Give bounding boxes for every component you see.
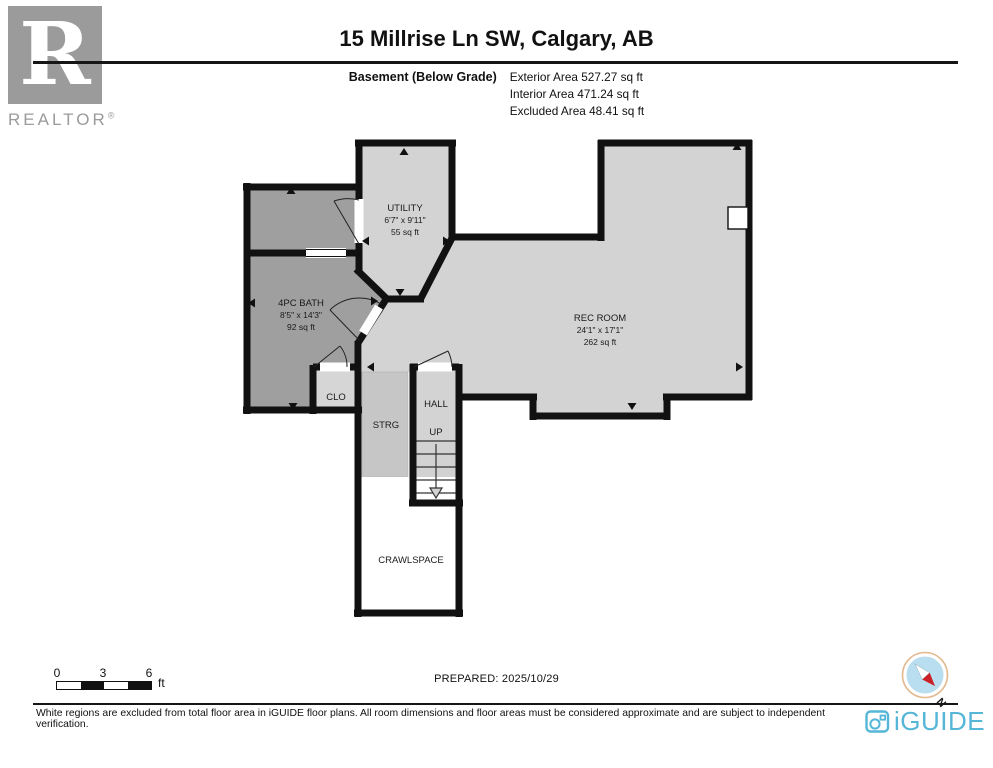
area-stats: Exterior Area 527.27 sq ft Interior Area…: [510, 69, 644, 120]
bath-area: 92 sq ft: [287, 322, 316, 332]
bath-dims: 8'5" x 14'3": [280, 310, 322, 320]
utility-label: UTILITY: [387, 203, 423, 214]
up-label: UP: [429, 427, 442, 438]
room-fills: [247, 143, 749, 613]
iguide-logo-text: iGUIDE: [894, 706, 985, 737]
excluded-area: Excluded Area 48.41 sq ft: [510, 103, 644, 120]
utility-dims: 6'7" x 9'11": [384, 215, 425, 225]
interior-area: Interior Area 471.24 sq ft: [510, 86, 644, 103]
floorplan-page: R REALTOR® 15 Millrise Ln SW, Calgary, A…: [0, 0, 993, 768]
hall-label: HALL: [424, 399, 448, 410]
clo-label: CLO: [326, 392, 346, 403]
room-clo-fill: [313, 367, 358, 410]
page-title: 15 Millrise Ln SW, Calgary, AB: [0, 26, 993, 52]
iguide-camera-icon: [864, 708, 891, 735]
prepared-date: PREPARED: 2025/10/29: [0, 673, 993, 685]
title-divider: [33, 61, 958, 64]
rec-area: 262 sq ft: [584, 337, 617, 347]
footer-disclaimer: White regions are excluded from total fl…: [36, 708, 866, 730]
iguide-logo: iGUIDE: [864, 706, 985, 737]
strg-label: STRG: [373, 420, 399, 431]
floor-info: Basement (Below Grade) Exterior Area 527…: [0, 69, 993, 120]
bath-label: 4PC BATH: [278, 298, 324, 309]
utility-door-gap: [355, 199, 364, 243]
crawlspace-label: CRAWLSPACE: [378, 555, 443, 566]
rec-dims: 24'1" x 17'1": [577, 325, 624, 335]
footer-divider: [33, 703, 958, 705]
exterior-area: Exterior Area 527.27 sq ft: [510, 69, 644, 86]
utility-area: 55 sq ft: [391, 227, 420, 237]
room-unlabeled-fill: [247, 187, 356, 253]
fireplace-box: [728, 207, 748, 229]
floorplan-drawing: UTILITY 6'7" x 9'11" 55 sq ft 4PC BATH 8…: [235, 130, 765, 630]
rec-label: REC ROOM: [574, 313, 626, 324]
floor-label: Basement (Below Grade): [349, 69, 497, 120]
